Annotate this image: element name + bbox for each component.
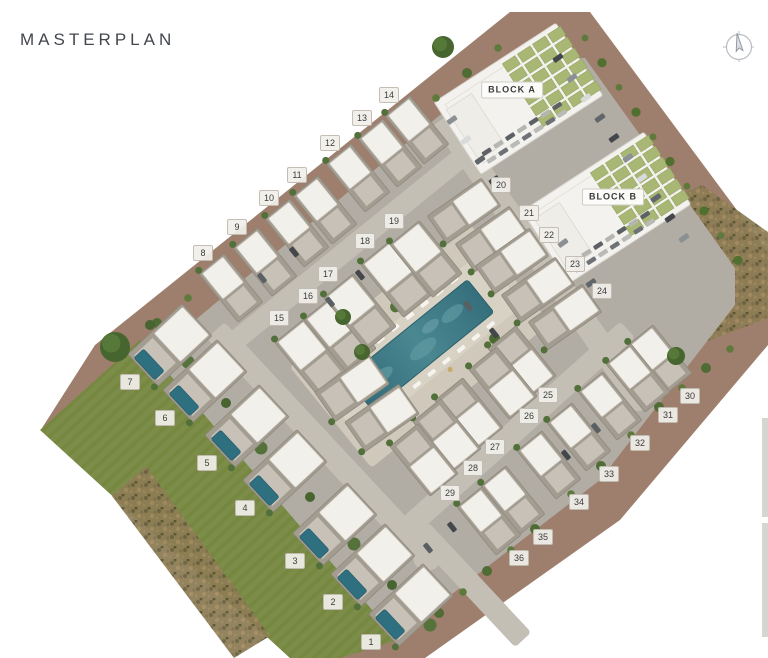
plot-label-30[interactable]: 30 (680, 388, 700, 404)
plot-label-33[interactable]: 33 (599, 466, 619, 482)
plot-label-9[interactable]: 9 (227, 219, 247, 235)
plot-label-4[interactable]: 4 (235, 500, 255, 516)
plot-label-11[interactable]: 11 (287, 167, 307, 183)
right-edge-panel (762, 418, 768, 517)
plot-label-17[interactable]: 17 (318, 266, 338, 282)
block-label-b[interactable]: BLOCK B (582, 189, 644, 206)
block-label-a[interactable]: BLOCK A (481, 82, 543, 99)
page-title: MASTERPLAN (20, 30, 175, 50)
plot-label-6[interactable]: 6 (155, 410, 175, 426)
plot-label-19[interactable]: 19 (384, 213, 404, 229)
plot-label-2[interactable]: 2 (323, 594, 343, 610)
plot-label-8[interactable]: 8 (193, 245, 213, 261)
plot-label-32[interactable]: 32 (630, 435, 650, 451)
plot-label-27[interactable]: 27 (485, 439, 505, 455)
plot-label-7[interactable]: 7 (120, 374, 140, 390)
right-edge-panel (762, 523, 768, 637)
plot-label-22[interactable]: 22 (539, 227, 559, 243)
plot-label-5[interactable]: 5 (197, 455, 217, 471)
masterplan-stage: MASTERPLAN (0, 0, 768, 658)
plot-label-13[interactable]: 13 (352, 110, 372, 126)
plot-label-15[interactable]: 15 (269, 310, 289, 326)
plot-label-1[interactable]: 1 (361, 634, 381, 650)
plot-label-29[interactable]: 29 (440, 485, 460, 501)
plot-label-31[interactable]: 31 (658, 407, 678, 423)
plot-label-26[interactable]: 26 (519, 408, 539, 424)
plot-label-21[interactable]: 21 (519, 205, 539, 221)
plot-label-16[interactable]: 16 (298, 288, 318, 304)
plot-label-14[interactable]: 14 (379, 87, 399, 103)
plot-label-18[interactable]: 18 (355, 233, 375, 249)
plot-label-35[interactable]: 35 (533, 529, 553, 545)
plot-label-3[interactable]: 3 (285, 553, 305, 569)
plot-label-10[interactable]: 10 (259, 190, 279, 206)
plot-label-23[interactable]: 23 (565, 256, 585, 272)
plot-label-12[interactable]: 12 (320, 135, 340, 151)
plot-label-34[interactable]: 34 (569, 494, 589, 510)
plot-label-24[interactable]: 24 (592, 283, 612, 299)
plot-label-25[interactable]: 25 (538, 387, 558, 403)
compass-rose-icon (722, 30, 756, 64)
plot-label-28[interactable]: 28 (463, 460, 483, 476)
plot-label-20[interactable]: 20 (491, 177, 511, 193)
plot-label-36[interactable]: 36 (509, 550, 529, 566)
